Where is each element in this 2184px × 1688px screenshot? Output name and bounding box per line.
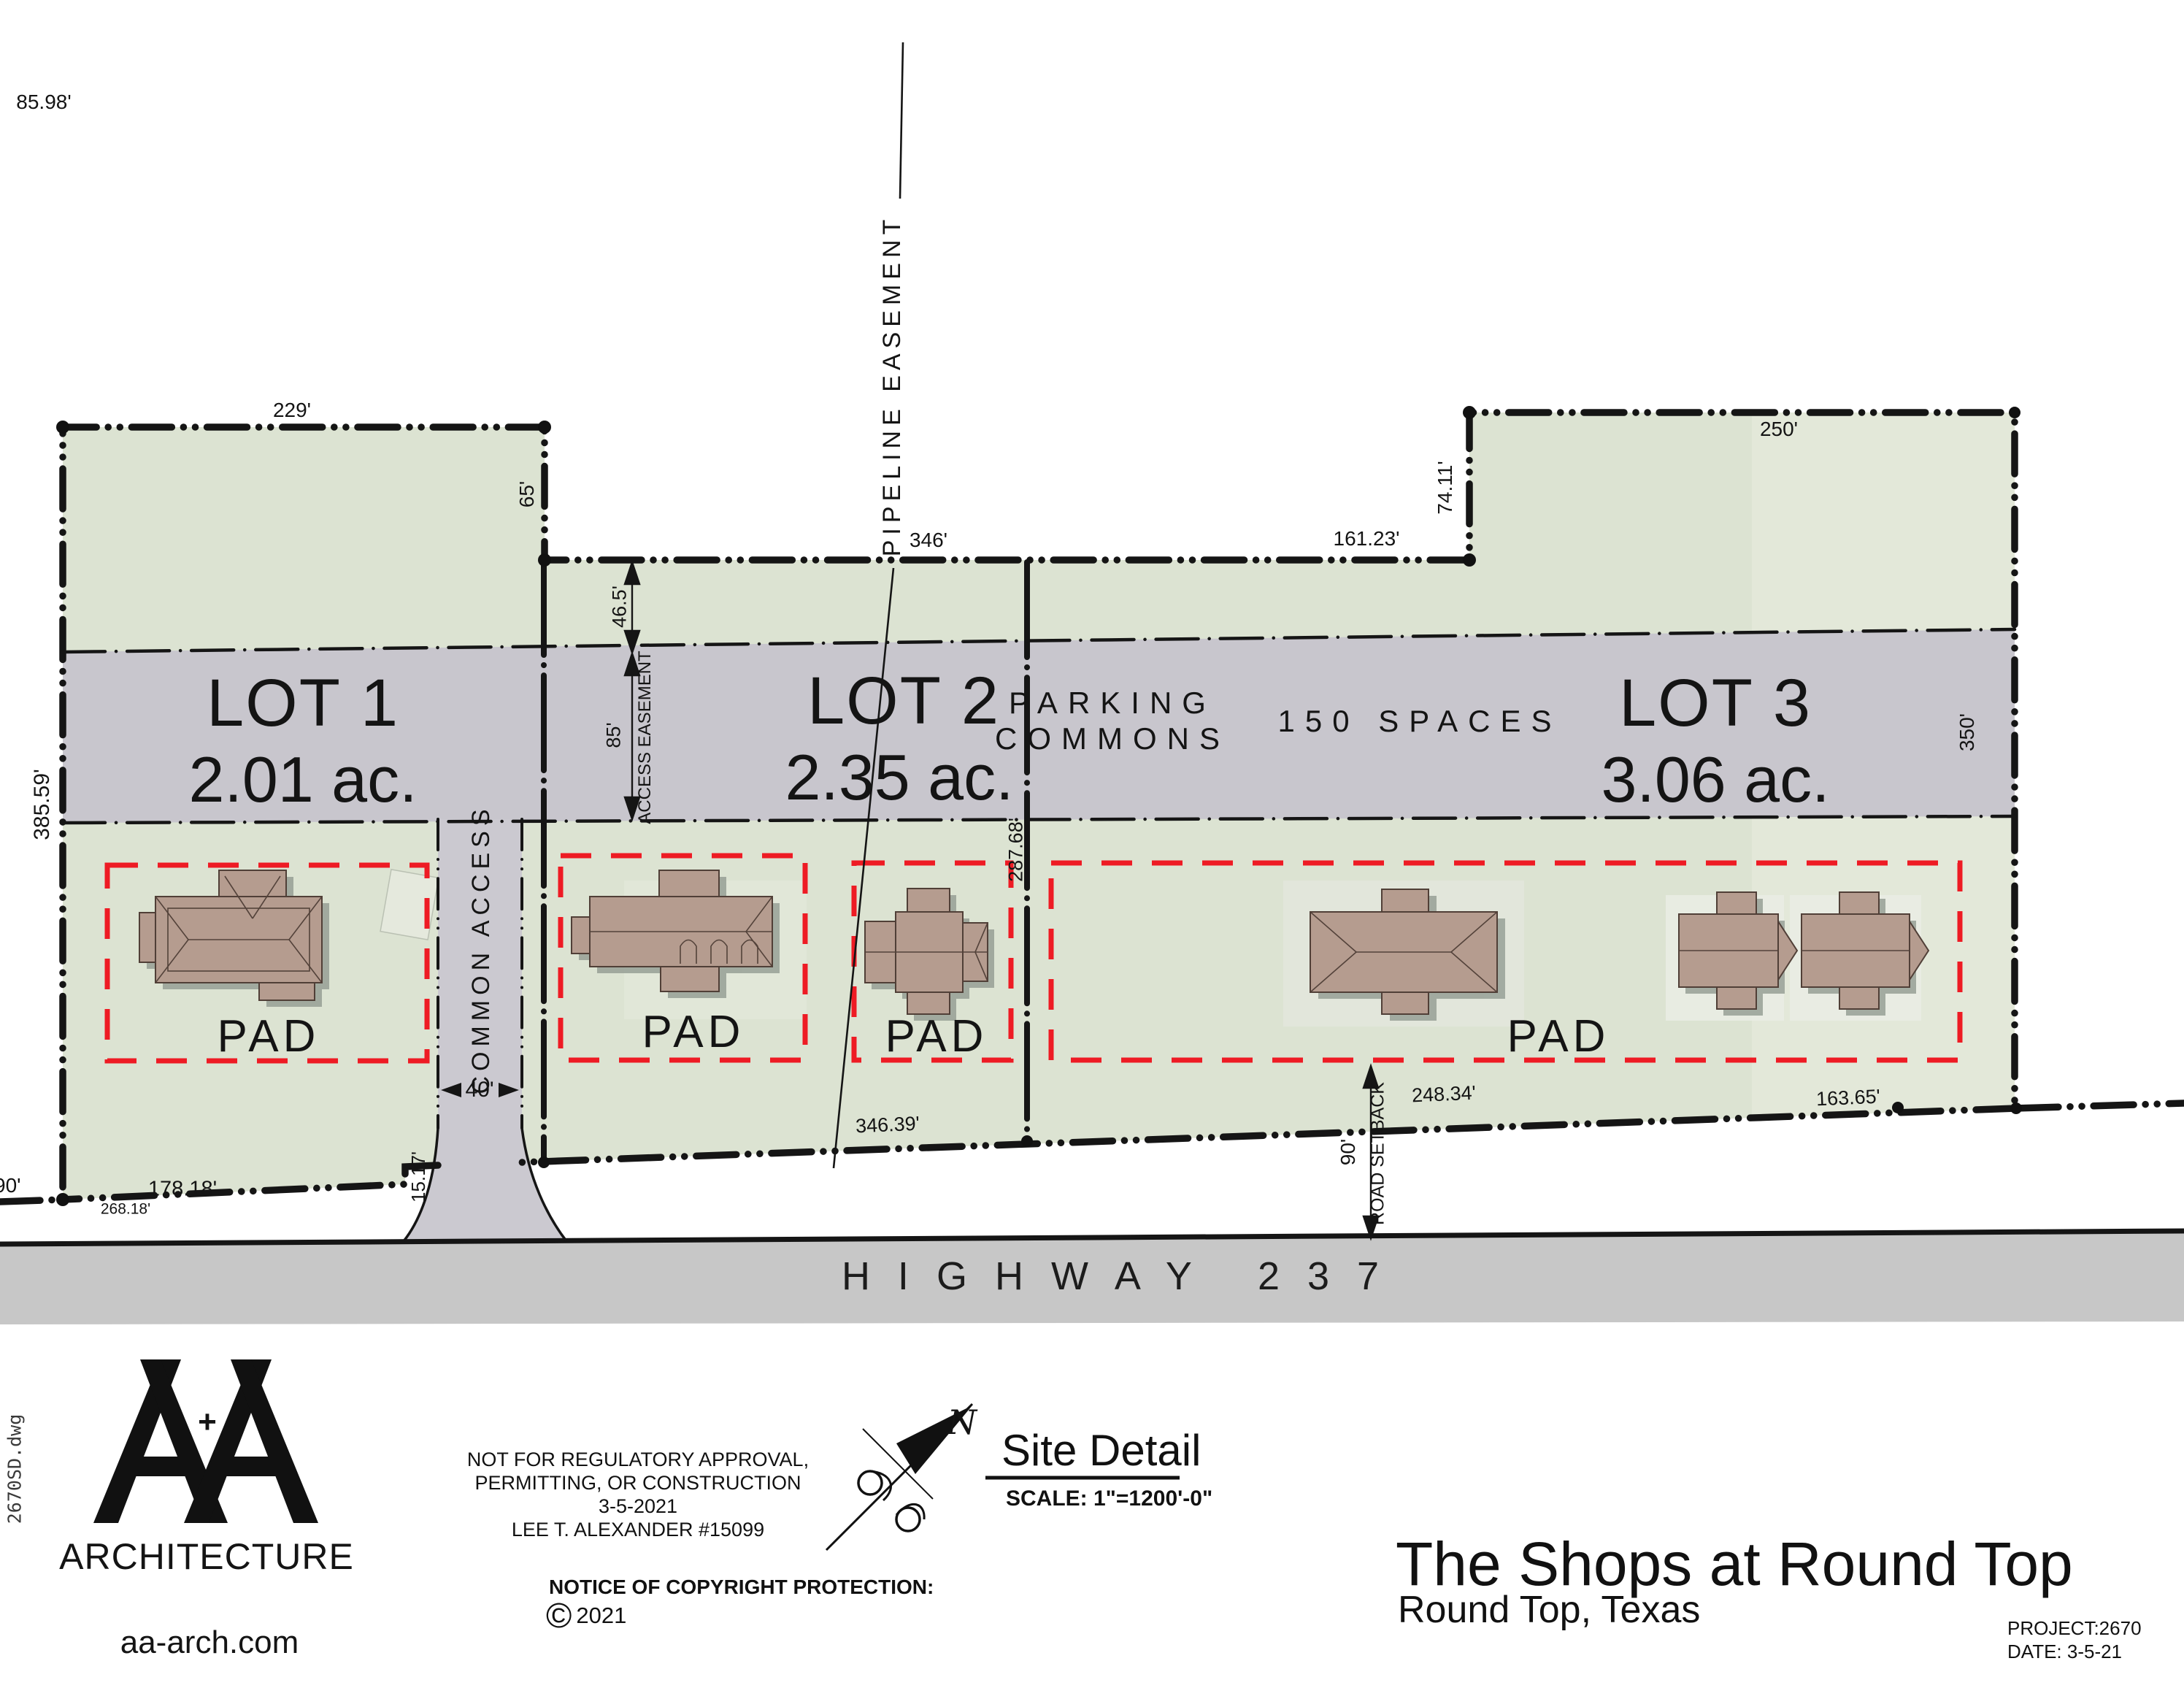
dim-229: 229' [273, 400, 311, 421]
dim-65: 65' [517, 481, 537, 508]
drawing-file-name: 2670SD.dwg [6, 1414, 24, 1524]
copyright-year: 2021 [576, 1603, 626, 1628]
dim-46-5: 46.5' [610, 586, 630, 628]
dim-163-65: 163.65' [1816, 1087, 1881, 1110]
disclaimer-note: NOT FOR REGULATORY APPROVAL, PERMITTING,… [467, 1449, 809, 1541]
pad-label-lot2b: PAD [885, 1014, 988, 1059]
dim-90-left: 90' [0, 1174, 21, 1197]
disclaimer-line3: 3-5-2021 [467, 1495, 809, 1519]
site-detail-title: Site Detail [1001, 1425, 1201, 1476]
project-number: PROJECT:2670 [2007, 1618, 2142, 1640]
pad-label-lot1: PAD [218, 1014, 320, 1059]
copyright-line: ©2021 [546, 1596, 626, 1636]
lot3-title: LOT 3 [1619, 670, 1812, 737]
dim-287-68: 287.68' [1007, 818, 1026, 882]
dim-90-setback: 90' [1338, 1139, 1358, 1166]
dim-350: 350' [1957, 713, 1977, 751]
dim-346: 346' [910, 530, 947, 550]
north-label: N [947, 1405, 977, 1439]
dim-250: 250' [1760, 419, 1798, 440]
copyright-icon: © [546, 1597, 572, 1635]
dim-385-59: 385.59' [31, 769, 53, 840]
lot3-area: 3.06 ac. [1601, 748, 1829, 812]
logo-firm-name: ARCHITECTURE [59, 1538, 354, 1575]
label-150-spaces: 150 SPACES [1277, 706, 1561, 737]
dim-161-23: 161.23' [1334, 529, 1400, 549]
label-access-easement: ACCESS EASEMENT [637, 651, 654, 824]
pad-label-lot2a: PAD [642, 1010, 745, 1055]
aa-architecture-logo [93, 1359, 318, 1523]
dim-74-11: 74.11' [1435, 461, 1456, 514]
disclaimer-line1: NOT FOR REGULATORY APPROVAL, [467, 1449, 809, 1472]
project-location: Round Top, Texas [1398, 1589, 1700, 1633]
dim-346-39: 346.39' [855, 1114, 920, 1137]
site-plan-sheet: 85.98' 229' 65' 346' 161.23' 74.11' 250'… [0, 0, 2184, 1688]
dim-85: 85' [604, 722, 624, 748]
lot1-title: LOT 1 [207, 670, 399, 737]
lot2-title: LOT 2 [807, 667, 1000, 734]
label-commons: COMMONS [995, 724, 1230, 754]
dim-268-18: 268.18' [101, 1202, 150, 1217]
highway-label: HIGHWAY 237 [842, 1257, 1407, 1296]
lot2-area: 2.35 ac. [785, 745, 1013, 810]
dim-85-98: 85.98' [16, 92, 71, 112]
label-road-setback: ROAD SETBACK [1369, 1082, 1388, 1225]
dim-248-34: 248.34' [1412, 1083, 1477, 1106]
pad-label-lot3: PAD [1507, 1014, 1610, 1059]
project-date: DATE: 3-5-21 [2007, 1641, 2122, 1663]
disclaimer-line4: LEE T. ALEXANDER #15099 [467, 1519, 809, 1542]
lot1-area: 2.01 ac. [188, 748, 417, 812]
logo-website: aa-arch.com [120, 1627, 299, 1659]
dim-178-18: 178.18' [148, 1179, 217, 1200]
label-parking: PARKING [1009, 688, 1216, 718]
site-detail-scale: SCALE: 1"=1200'-0" [1006, 1486, 1212, 1512]
label-pipeline-easement: PIPELINE EASEMENT [880, 215, 904, 557]
dim-15-17: 15.17' [409, 1151, 428, 1202]
label-common-access: COMMON ACCESS [469, 804, 493, 1094]
disclaimer-line2: PERMITTING, OR CONSTRUCTION [467, 1472, 809, 1495]
logo-plus: + [198, 1406, 217, 1438]
